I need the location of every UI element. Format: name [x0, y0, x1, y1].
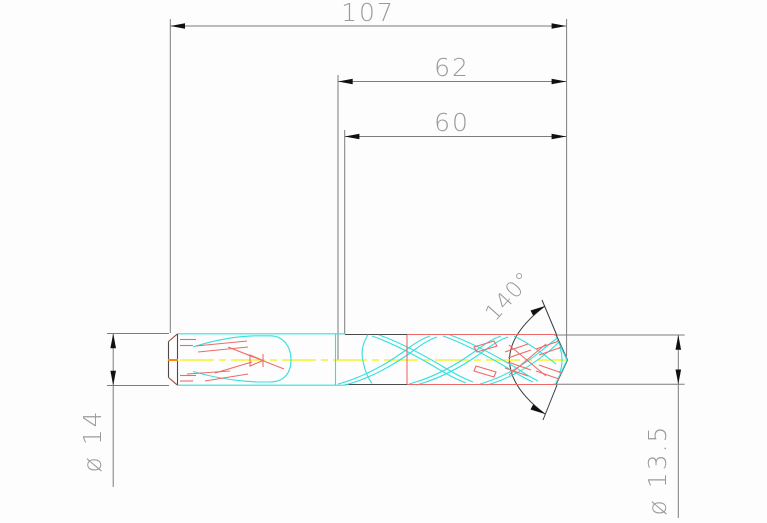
arrow: [531, 306, 546, 316]
arrow: [110, 371, 116, 386]
dia14-text: ø 14: [78, 409, 107, 472]
arrow: [531, 405, 546, 415]
arrow: [676, 335, 682, 350]
coolant-window: [474, 366, 496, 377]
dim-62-text: 62: [434, 53, 470, 82]
dim-60-text: 60: [434, 108, 470, 137]
arrow: [676, 370, 682, 385]
arrow: [552, 23, 567, 29]
chamfer-top: [169, 334, 178, 342]
arrow: [110, 334, 116, 349]
channel: [205, 374, 248, 381]
dimension-layer: [107, 19, 685, 518]
dia135-text: ø 13.5: [643, 425, 672, 516]
channel: [198, 347, 248, 352]
chamfer-bottom: [169, 378, 178, 386]
dimension-texts: 107 62 60 ø 14 ø 13.5 140°: [78, 0, 672, 515]
dim-107-text: 107: [341, 0, 395, 27]
arrow: [345, 134, 360, 140]
arrow: [170, 23, 185, 29]
angle-text: 140°: [481, 267, 538, 326]
channel: [539, 347, 562, 355]
angle-ext-top: [542, 300, 557, 335]
cad-viewport: 107 62 60 ø 14 ø 13.5 140°: [0, 0, 767, 523]
channel: [536, 371, 559, 379]
arrow: [338, 79, 353, 85]
channel: [539, 365, 562, 373]
drawing-sheet: 107 62 60 ø 14 ø 13.5 140°: [0, 0, 767, 523]
arrow: [552, 79, 567, 85]
arrow: [552, 134, 567, 140]
angle-ext-bottom: [543, 385, 557, 420]
